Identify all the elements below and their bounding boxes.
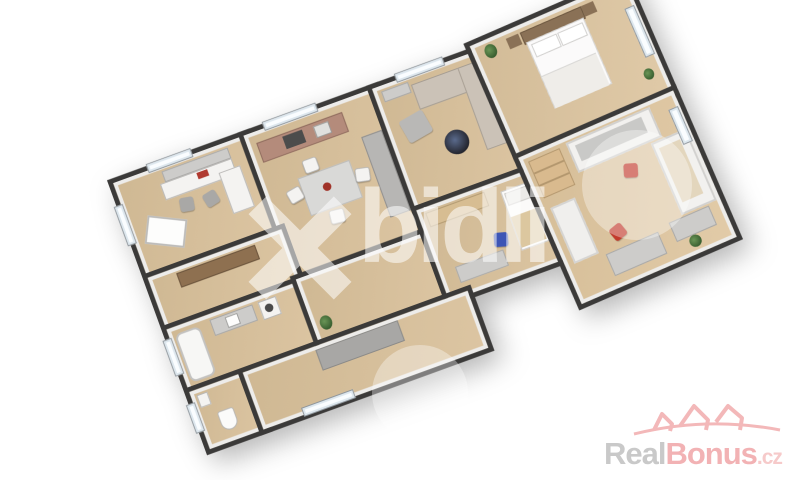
lounger (550, 197, 599, 263)
bunk-bed-mattress (659, 139, 703, 202)
toilet (217, 406, 240, 431)
three-houses-arc-icon (632, 400, 782, 438)
plant (318, 314, 334, 332)
red-chair (608, 222, 628, 242)
realbonus-wordmark: RealBonus.cz (604, 436, 794, 472)
logo-tld: .cz (757, 446, 782, 469)
shelf-line (534, 160, 564, 175)
nightstand (506, 34, 523, 50)
round-coffee-table (441, 126, 473, 158)
shelf-line (539, 172, 569, 187)
dining-chair (354, 167, 371, 183)
pillow (557, 22, 588, 46)
realbonus-logo: RealBonus.cz (604, 400, 794, 474)
washer-door (264, 302, 275, 313)
shelf-unit (528, 148, 575, 198)
logo-real: Real (604, 436, 665, 471)
dining-chair (328, 207, 346, 225)
leaning-whiteboard (145, 215, 188, 248)
armchair (398, 109, 433, 144)
red-chair (623, 163, 638, 178)
office-chair (179, 196, 196, 213)
blue-chair (493, 232, 508, 247)
bedroom-desk (455, 249, 509, 283)
plant (642, 67, 656, 82)
loft-bed-mattress (575, 117, 648, 161)
duvet (542, 53, 610, 109)
floorplan-screenshot: bidli RealBonus.cz (0, 0, 800, 480)
pillow (531, 34, 562, 58)
washing-machine (258, 296, 282, 320)
plant (482, 42, 499, 60)
logo-bonus: Bonus (665, 436, 756, 471)
office-chair (201, 189, 221, 209)
sideboard (381, 82, 412, 102)
corner-sink (196, 392, 211, 408)
office-side-desk (219, 165, 255, 214)
